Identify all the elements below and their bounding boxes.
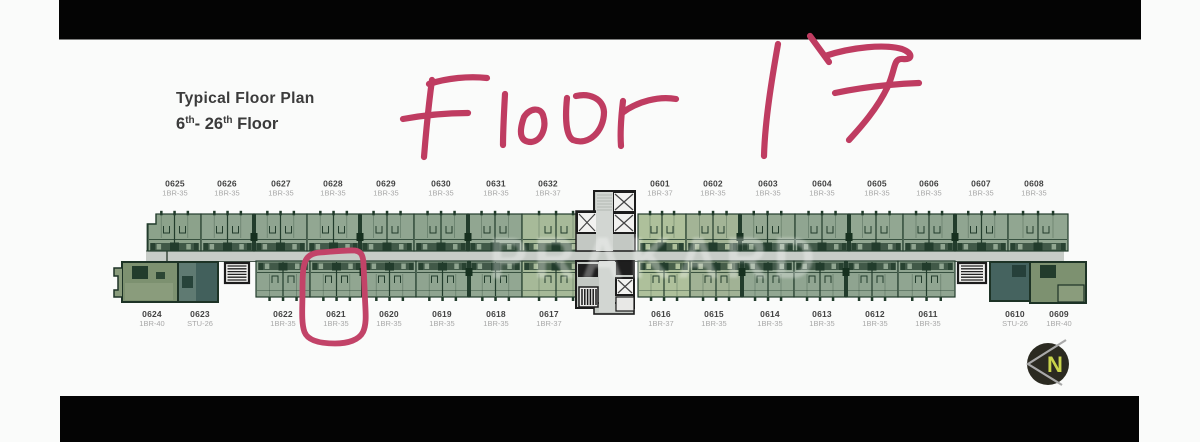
svg-text:0604: 0604 (812, 179, 832, 189)
svg-text:0616: 0616 (651, 309, 671, 319)
svg-text:1BR-37: 1BR-37 (535, 189, 560, 198)
svg-text:0608: 0608 (1024, 179, 1044, 189)
svg-text:0625: 0625 (165, 179, 185, 189)
svg-text:1BR-35: 1BR-35 (428, 189, 453, 198)
svg-text:0623: 0623 (190, 309, 210, 319)
svg-text:1BR-35: 1BR-35 (483, 189, 508, 198)
svg-text:0626: 0626 (217, 179, 237, 189)
svg-text:0610: 0610 (1005, 309, 1025, 319)
svg-text:0613: 0613 (812, 309, 832, 319)
svg-text:1BR-35: 1BR-35 (429, 319, 454, 328)
svg-text:0618: 0618 (486, 309, 506, 319)
svg-text:1BR-35: 1BR-35 (268, 189, 293, 198)
svg-text:0609: 0609 (1049, 309, 1069, 319)
svg-text:0621: 0621 (326, 309, 346, 319)
svg-text:0607: 0607 (971, 179, 991, 189)
svg-text:1BR-37: 1BR-37 (536, 319, 561, 328)
svg-text:1BR-35: 1BR-35 (915, 319, 940, 328)
svg-text:1BR-35: 1BR-35 (862, 319, 887, 328)
svg-text:1BR-35: 1BR-35 (809, 319, 834, 328)
svg-text:0622: 0622 (273, 309, 293, 319)
svg-text:1BR-35: 1BR-35 (968, 189, 993, 198)
svg-text:0601: 0601 (650, 179, 670, 189)
svg-text:1BR-35: 1BR-35 (809, 189, 834, 198)
svg-text:0605: 0605 (867, 179, 887, 189)
svg-text:1BR-35: 1BR-35 (162, 189, 187, 198)
svg-text:1BR-40: 1BR-40 (1046, 319, 1071, 328)
svg-text:1BR-35: 1BR-35 (214, 189, 239, 198)
svg-text:0603: 0603 (758, 179, 778, 189)
svg-text:STU-26: STU-26 (1002, 319, 1028, 328)
svg-text:0602: 0602 (703, 179, 723, 189)
svg-text:0612: 0612 (865, 309, 885, 319)
svg-text:0620: 0620 (379, 309, 399, 319)
svg-text:0630: 0630 (431, 179, 451, 189)
svg-text:1BR-35: 1BR-35 (373, 189, 398, 198)
svg-text:1BR-35: 1BR-35 (320, 189, 345, 198)
svg-text:0624: 0624 (142, 309, 162, 319)
svg-text:1BR-35: 1BR-35 (701, 319, 726, 328)
svg-text:1BR-40: 1BR-40 (139, 319, 164, 328)
svg-text:1BR-37: 1BR-37 (647, 189, 672, 198)
svg-text:1BR-35: 1BR-35 (483, 319, 508, 328)
svg-text:0631: 0631 (486, 179, 506, 189)
svg-text:1BR-35: 1BR-35 (755, 189, 780, 198)
svg-text:1BR-37: 1BR-37 (648, 319, 673, 328)
svg-text:PRAKARD: PRAKARD (489, 226, 821, 291)
svg-text:1BR-35: 1BR-35 (757, 319, 782, 328)
svg-text:Typical Floor Plan: Typical Floor Plan (176, 90, 315, 107)
svg-text:1BR-35: 1BR-35 (270, 319, 295, 328)
svg-text:1BR-35: 1BR-35 (700, 189, 725, 198)
svg-text:0619: 0619 (432, 309, 452, 319)
svg-text:1BR-35: 1BR-35 (916, 189, 941, 198)
svg-text:1BR-35: 1BR-35 (1021, 189, 1046, 198)
svg-text:0629: 0629 (376, 179, 396, 189)
svg-text:0627: 0627 (271, 179, 291, 189)
svg-text:1BR-35: 1BR-35 (323, 319, 348, 328)
svg-text:STU-26: STU-26 (187, 319, 213, 328)
svg-text:1BR-35: 1BR-35 (376, 319, 401, 328)
svg-text:0628: 0628 (323, 179, 343, 189)
svg-text:0617: 0617 (539, 309, 559, 319)
svg-text:0606: 0606 (919, 179, 939, 189)
svg-text:0614: 0614 (760, 309, 780, 319)
svg-text:0611: 0611 (918, 309, 937, 319)
svg-text:1BR-35: 1BR-35 (864, 189, 889, 198)
svg-text:N: N (1047, 352, 1063, 377)
svg-text:0615: 0615 (704, 309, 724, 319)
svg-text:0632: 0632 (538, 179, 558, 189)
